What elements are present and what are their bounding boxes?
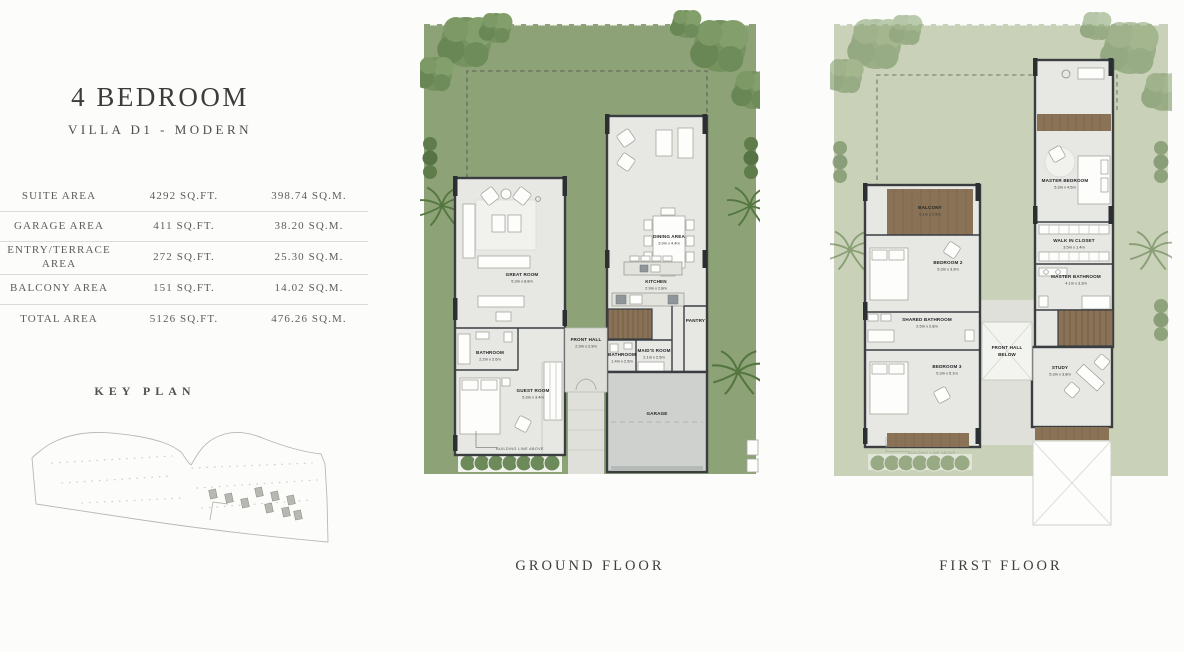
dims-bedroom-2: 5.3m x 3.9m xyxy=(937,267,958,272)
first-right-wing xyxy=(1033,58,1113,347)
label-maids-room: MAID'S ROOM xyxy=(637,348,670,353)
area-sqft: 272 SQ.FT. xyxy=(118,251,250,265)
tree-icon xyxy=(889,15,923,45)
label-garage: GARAGE xyxy=(646,411,667,416)
entry-walkway xyxy=(568,392,604,474)
ground-floor-plan: GREAT ROOM 5.3m x 8.8m DINING AREA 3.9m … xyxy=(420,10,760,495)
hedge-icon xyxy=(423,137,438,179)
dims-kitchen: 2.9m x 2.8m xyxy=(645,286,666,291)
area-sqft: 151 SQ.FT. xyxy=(118,282,250,296)
tree-icon xyxy=(830,59,864,93)
site-inner-line xyxy=(210,502,228,520)
ground-floor-drawing: GREAT ROOM 5.3m x 8.8m DINING AREA 3.9m … xyxy=(420,10,760,495)
key-plan-title: KEY PLAN xyxy=(20,384,270,399)
hedge-icon xyxy=(1154,141,1169,183)
label-master-bathroom: MASTER BATHROOM xyxy=(1051,274,1101,279)
dims-guest-bathroom: 2.2m x 2.6m xyxy=(479,357,500,362)
first-roof-void xyxy=(1033,441,1111,525)
ground-left-wing xyxy=(453,176,567,455)
first-floor-plan: BALCONY 5.1m x 2.5m BEDROOM 2 5.3m x 3.9… xyxy=(830,10,1172,530)
first-floor-caption: FIRST FLOOR xyxy=(830,558,1172,575)
label-bedroom-2: BEDROOM 2 xyxy=(933,260,962,265)
area-table: SUITE AREA 4292 SQ.FT. 398.74 SQ.M. GARA… xyxy=(0,182,368,335)
table-row: BALCONY AREA 151 SQ.FT. 14.02 SQ.M. xyxy=(0,275,368,305)
dims-master-bathroom: 4.1m x 3.3m xyxy=(1065,281,1086,286)
key-plan-map xyxy=(22,408,352,558)
label-kitchen: KITCHEN xyxy=(645,279,667,284)
table-row: SUITE AREA 4292 SQ.FT. 398.74 SQ.M. xyxy=(0,182,368,212)
label-guest-bathroom: BATHROOM xyxy=(476,350,504,355)
label-balcony: BALCONY xyxy=(918,205,942,210)
area-sqft: 5126 SQ.FT. xyxy=(118,313,250,327)
dims-guest-room: 5.3m x 3.4m xyxy=(522,395,543,400)
dims-bathroom: 1.4m x 2.5m xyxy=(611,359,632,364)
dims-front-hall: 2.9m x 2.9m xyxy=(575,344,596,349)
label-front-hall: FRONT HALL xyxy=(571,337,602,342)
label-bedroom-3: BEDROOM 3 xyxy=(932,364,961,369)
utility-box xyxy=(747,459,758,472)
ground-floor-caption: GROUND FLOOR xyxy=(420,558,760,575)
area-sqm: 25.30 SQ.M. xyxy=(250,251,368,265)
label-bathroom: BATHROOM xyxy=(608,352,636,357)
site-boundary xyxy=(36,498,328,542)
area-sqm: 38.20 SQ.M. xyxy=(250,220,368,234)
bush-icon xyxy=(544,455,560,471)
ground-center-wing xyxy=(605,114,707,372)
area-label: ENTRY/TERRACE AREA xyxy=(0,244,118,272)
area-sqm: 14.02 SQ.M. xyxy=(250,282,368,296)
table-row: GARAGE AREA 411 SQ.FT. 38.20 SQ.M. xyxy=(0,212,368,242)
label-guest-room: GUEST ROOM xyxy=(517,388,550,393)
dims-walk-in-closet: 3.5m x 1.4m xyxy=(1063,245,1084,250)
page-subtitle: VILLA D1 - MODERN xyxy=(20,122,300,138)
dims-dining-area: 3.9m x 4.4m xyxy=(658,241,679,246)
label-front-hall-below-1: FRONT HALL xyxy=(992,345,1023,350)
site-outline xyxy=(32,432,327,504)
hedge-icon xyxy=(744,137,759,179)
dims-maids-room: 2.1m x 2.5m xyxy=(643,355,664,360)
tree-icon xyxy=(420,57,454,91)
label-walk-in-closet: WALK IN CLOSET xyxy=(1053,238,1094,243)
hedge-icon xyxy=(1154,299,1169,341)
first-front-hall-void xyxy=(982,322,1032,380)
utility-box xyxy=(747,440,758,455)
brochure-page: 4 BEDROOM VILLA D1 - MODERN SUITE AREA 4… xyxy=(0,0,1184,652)
area-sqm: 476.26 SQ.M. xyxy=(250,313,368,327)
area-sqm: 398.74 SQ.M. xyxy=(250,190,368,204)
dims-balcony: 5.1m x 2.5m xyxy=(919,212,940,217)
tree-icon xyxy=(479,13,513,43)
label-pantry: PANTRY xyxy=(686,318,705,323)
table-row: ENTRY/TERRACE AREA 272 SQ.FT. 25.30 SQ.M… xyxy=(0,242,368,275)
first-left-wing xyxy=(863,183,980,447)
dims-study: 5.3m x 3.8m xyxy=(1049,372,1070,377)
area-sqft: 411 SQ.FT. xyxy=(118,220,250,234)
area-label: TOTAL AREA xyxy=(0,313,118,327)
table-row-total: TOTAL AREA 5126 SQ.FT. 476.26 SQ.M. xyxy=(0,305,368,335)
dims-shared-bathroom: 2.5m x 2.8m xyxy=(916,324,937,329)
building-line-label: BUILDING LINE ABOVE xyxy=(908,451,956,455)
area-label: BALCONY AREA xyxy=(0,282,118,296)
first-study xyxy=(1032,347,1112,440)
label-dining-area: DINING AREA xyxy=(653,234,685,239)
label-shared-bathroom: SHARED BATHROOM xyxy=(902,317,952,322)
area-label: SUITE AREA xyxy=(0,190,118,204)
label-study: STUDY xyxy=(1052,365,1068,370)
tree-icon xyxy=(1080,12,1112,40)
label-front-hall-below-2: BELOW xyxy=(998,352,1016,357)
area-sqft: 4292 SQ.FT. xyxy=(118,190,250,204)
bush-icon xyxy=(954,455,970,471)
dims-master-bedroom: 5.3m x 4.5m xyxy=(1054,185,1075,190)
ground-garage xyxy=(607,372,707,472)
label-great-room: GREAT ROOM xyxy=(506,272,539,277)
dims-bedroom-3: 5.3m x 5.1m xyxy=(936,371,957,376)
page-title: 4 BEDROOM xyxy=(20,82,300,113)
first-floor-drawing: BALCONY 5.1m x 2.5m BEDROOM 2 5.3m x 3.9… xyxy=(830,10,1172,530)
building-line-label: BUILDING LINE ABOVE xyxy=(496,447,544,451)
label-master-bedroom: MASTER BEDROOM xyxy=(1042,178,1089,183)
dims-great-room: 5.3m x 8.8m xyxy=(511,279,532,284)
area-label: GARAGE AREA xyxy=(0,220,118,234)
hedge-icon xyxy=(833,141,848,183)
tree-icon xyxy=(670,10,702,38)
